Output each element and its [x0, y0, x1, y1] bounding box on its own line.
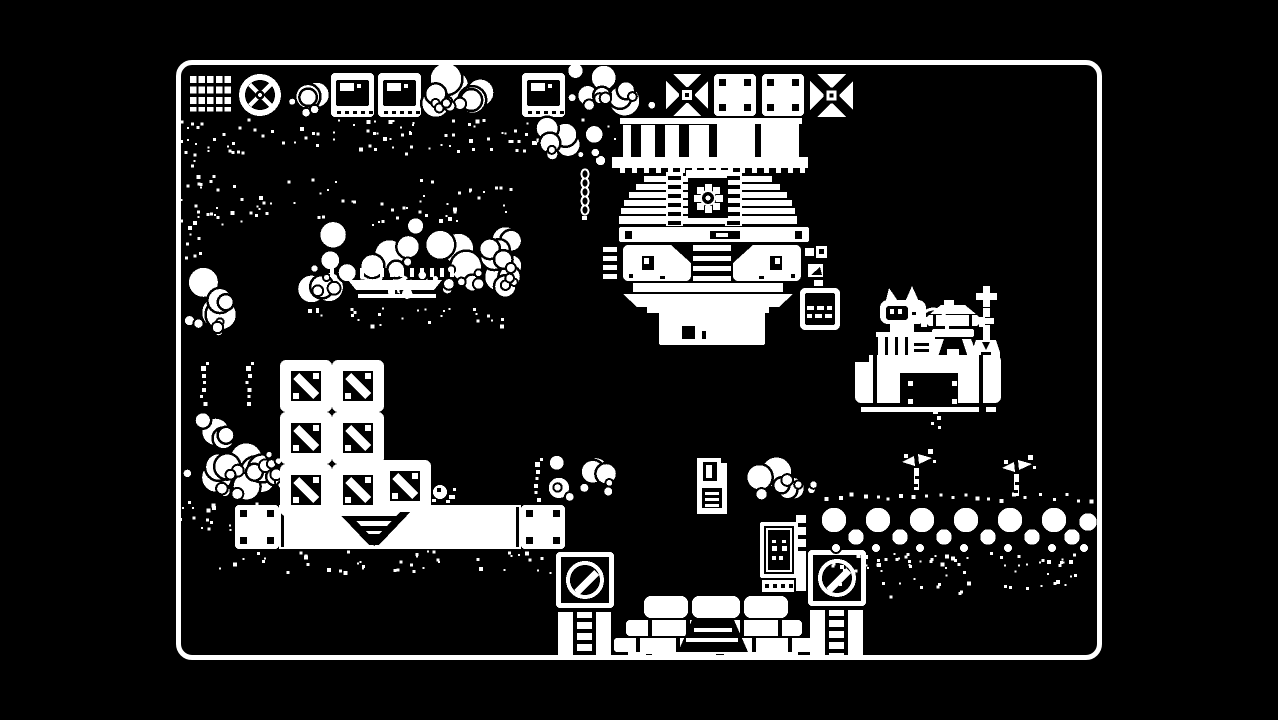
crate-3	[280, 412, 332, 464]
crate-7	[379, 460, 431, 512]
tile-window-3	[522, 73, 565, 117]
factory-machine	[603, 118, 827, 313]
tile-window-2	[378, 73, 421, 117]
tile-x-2	[810, 74, 853, 117]
moss-band-left	[197, 178, 513, 225]
sprout-dots-right	[534, 458, 543, 508]
speaker-tower-left	[556, 552, 614, 655]
right-platform	[855, 355, 1001, 412]
game-screen	[0, 0, 1278, 720]
monitor-panel	[760, 515, 806, 592]
game-viewport[interactable]	[176, 60, 1102, 660]
crate-6	[332, 464, 384, 516]
game-scene	[181, 65, 1097, 655]
crate-4	[332, 412, 384, 464]
hanging-chain	[582, 170, 589, 221]
dot-sign	[800, 288, 840, 330]
sprout-dots-a	[200, 362, 209, 406]
foliage-top-c	[567, 65, 656, 117]
tile-grid	[188, 73, 232, 117]
foliage-mid	[535, 117, 606, 167]
crate-1	[280, 360, 332, 412]
foliage-tower-right	[746, 456, 818, 500]
sprout-leafy-a	[902, 449, 936, 490]
tile-corner-2	[762, 74, 804, 116]
moss-under-canopy	[308, 307, 504, 328]
foliage-top-a	[288, 82, 330, 118]
crate-5	[280, 464, 332, 516]
marquee-sign	[659, 311, 765, 345]
tile-corner-1	[714, 74, 756, 116]
foliage-left-column	[184, 267, 237, 337]
tile-x-1	[666, 74, 708, 116]
floppy-disk-item	[697, 458, 727, 514]
canopy-mid-left	[297, 217, 523, 303]
landing-pad	[614, 596, 812, 655]
foliage-top-b	[421, 65, 494, 118]
moss-under-platform	[219, 550, 567, 575]
speaker-tower-right	[808, 550, 866, 655]
crate-2	[332, 360, 384, 412]
hedge-left	[183, 412, 288, 501]
foliage-tower-left	[548, 455, 617, 502]
tile-wheel	[239, 74, 281, 116]
sprout-leafy-b	[1002, 455, 1036, 496]
moss-left-edge	[181, 120, 215, 259]
tile-window-1	[331, 73, 374, 117]
sprout-dots-b	[246, 362, 254, 406]
